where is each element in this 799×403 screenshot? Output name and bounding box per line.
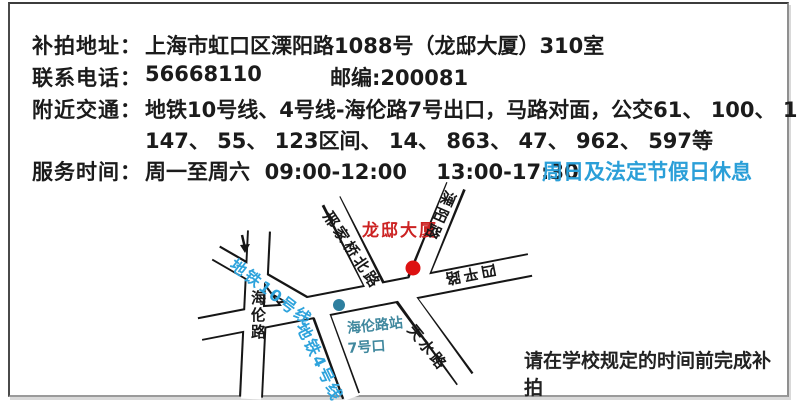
footer-note: 请在学校规定的时间前完成补拍 (524, 346, 787, 400)
notice-page: 补拍地址： 上海市虹口区溧阳路1088号（龙邸大厦）310室 联系电话： 566… (0, 0, 799, 403)
building-marker-dot (406, 261, 421, 276)
location-map (10, 4, 799, 403)
notice-frame: 补拍地址： 上海市虹口区溧阳路1088号（龙邸大厦）310室 联系电话： 566… (8, 2, 789, 397)
station-exit-label: 7号口 (347, 335, 386, 358)
station-marker-dot (333, 299, 345, 311)
